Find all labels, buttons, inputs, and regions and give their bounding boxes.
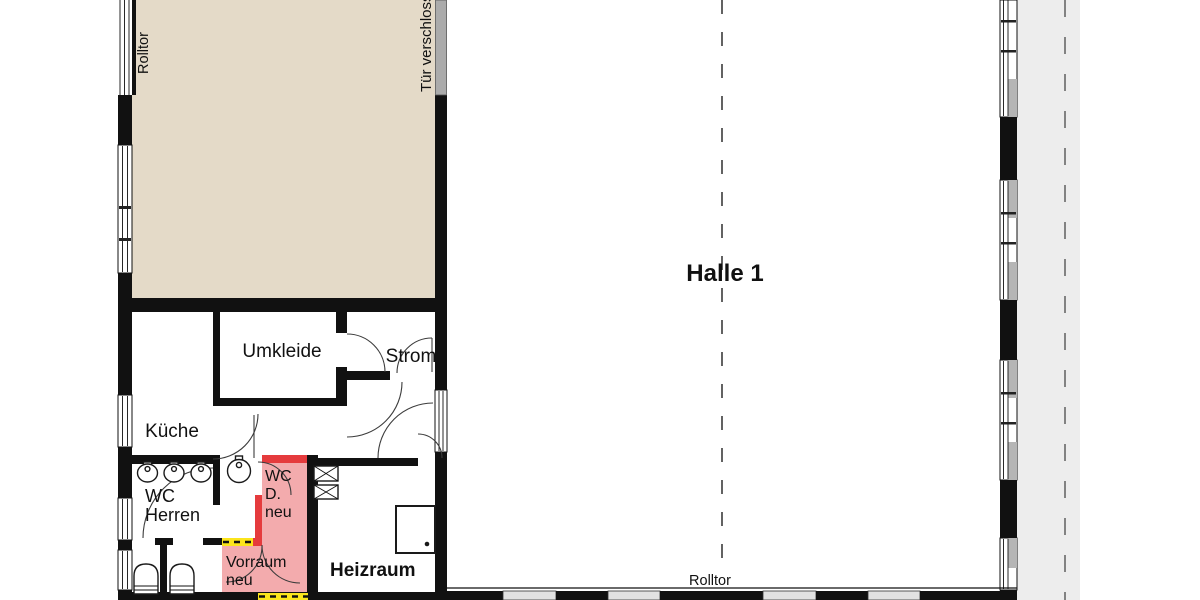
wall-segment xyxy=(155,538,173,545)
gate-panel xyxy=(763,591,816,600)
toilet-icon xyxy=(170,564,194,594)
locked-door-icon xyxy=(436,0,447,95)
electrical-room-label: Strom xyxy=(386,346,437,367)
window-symbol xyxy=(118,550,132,590)
gate-panel xyxy=(920,591,1017,600)
wall-segment xyxy=(213,398,347,406)
locked-door-label: Tür verschlossen xyxy=(418,0,435,92)
wall-segment xyxy=(213,312,220,405)
wall-segment xyxy=(118,298,447,312)
changing-room-label: Umkleide xyxy=(242,341,321,362)
anteroom-new-label-line1: Vorraum xyxy=(226,554,286,571)
window-symbol xyxy=(1000,360,1017,480)
wall-segment xyxy=(435,95,447,390)
wall-segment xyxy=(347,371,390,380)
gate-panel xyxy=(868,591,920,600)
gate-panel xyxy=(816,591,868,600)
wall-segment xyxy=(1000,117,1017,180)
kitchen-label: Küche xyxy=(145,421,199,442)
window-symbol xyxy=(1000,180,1017,300)
window-symbol xyxy=(118,395,132,447)
window-symbol xyxy=(118,498,132,540)
wall-segment xyxy=(1000,480,1017,538)
electrical-box-icon xyxy=(314,466,338,481)
annex-hall-floor xyxy=(132,0,435,300)
window-symbol xyxy=(1000,538,1017,590)
gate-panel xyxy=(608,591,660,600)
wc-women-new-label-line3: neu xyxy=(265,504,292,521)
wall-segment xyxy=(435,452,447,600)
wall-segment xyxy=(213,455,220,505)
hall-label: Halle 1 xyxy=(686,260,763,287)
electrical-box-icon xyxy=(314,485,338,499)
boiler-room-label: Heizraum xyxy=(330,560,416,581)
floor-plan-drawing: Halle 1 Umkleide Strom Küche WC Herren W… xyxy=(0,0,1200,600)
window-symbol xyxy=(118,145,132,273)
wall-segment xyxy=(336,367,347,406)
window-symbol xyxy=(1000,0,1017,117)
anteroom-new-label-line2: neu xyxy=(226,572,253,589)
wc-women-new-label-line1: WC xyxy=(265,468,292,485)
wall-segment xyxy=(160,545,167,595)
wall-segment xyxy=(307,458,418,466)
wall-segment xyxy=(1000,300,1017,360)
wall-segment xyxy=(203,538,222,545)
gate-panel xyxy=(556,591,608,600)
new-wall-red xyxy=(255,495,262,538)
wc-men-label-line2: Herren xyxy=(145,505,200,525)
roller-door-left-label: Rolltor xyxy=(136,32,152,74)
boiler-icon xyxy=(396,506,435,553)
gate-panel xyxy=(503,591,556,600)
gate-panel xyxy=(660,591,763,600)
wall-segment xyxy=(118,95,132,145)
new-wall-red xyxy=(253,538,262,546)
wall-segment xyxy=(118,447,132,498)
wc-men-label-line1: WC xyxy=(145,486,175,506)
wall-segment xyxy=(118,273,132,395)
floor-plan-canvas: Halle 1 Umkleide Strom Küche WC Herren W… xyxy=(0,0,1200,600)
toilet-icon xyxy=(134,564,158,594)
new-wall-red xyxy=(262,455,307,463)
wall-segment xyxy=(336,312,347,333)
wc-women-new-label-line2: D. xyxy=(265,486,281,503)
roller-door-bottom-label: Rolltor xyxy=(689,573,731,589)
outside-strip xyxy=(1017,0,1080,600)
gate-panel xyxy=(447,591,503,600)
